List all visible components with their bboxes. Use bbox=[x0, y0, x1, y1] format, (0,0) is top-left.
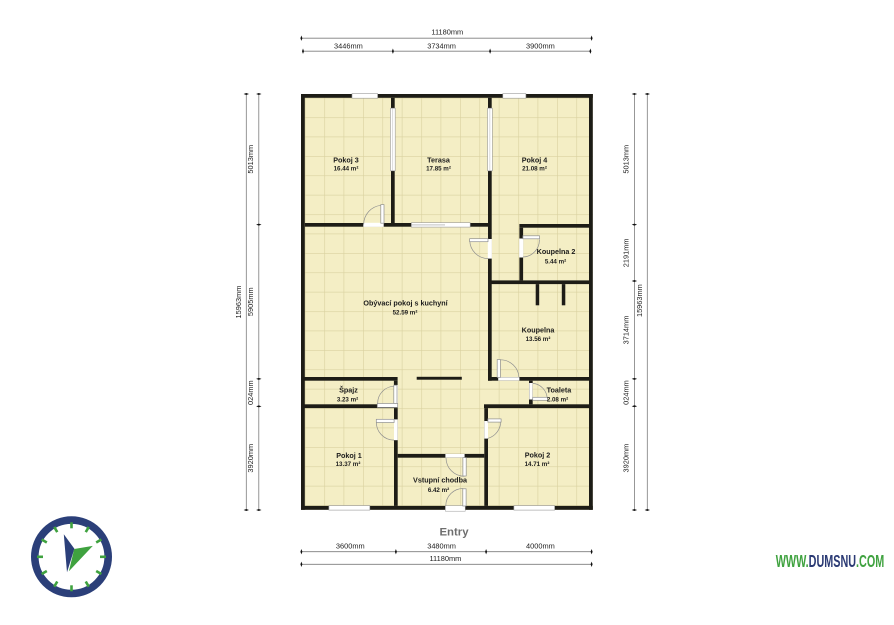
svg-text:2191mm: 2191mm bbox=[622, 238, 631, 267]
svg-text:17.85 m²: 17.85 m² bbox=[426, 165, 451, 172]
svg-text:5905mm: 5905mm bbox=[246, 287, 255, 316]
svg-text:3920mm: 3920mm bbox=[246, 444, 255, 473]
svg-text:3.23 m²: 3.23 m² bbox=[337, 397, 358, 404]
svg-text:Toaleta: Toaleta bbox=[547, 385, 573, 394]
svg-text:5.44 m²: 5.44 m² bbox=[545, 258, 566, 265]
svg-text:52.59 m²: 52.59 m² bbox=[393, 309, 418, 316]
svg-text:11180mm: 11180mm bbox=[431, 28, 463, 37]
svg-text:21.08 m²: 21.08 m² bbox=[522, 165, 547, 172]
svg-text:3600mm: 3600mm bbox=[336, 541, 365, 550]
svg-text:Pokoj 1: Pokoj 1 bbox=[336, 451, 362, 460]
svg-text:6.42 m²: 6.42 m² bbox=[428, 487, 449, 494]
svg-text:Koupelna: Koupelna bbox=[522, 325, 556, 334]
svg-text:15963mm: 15963mm bbox=[635, 284, 644, 317]
svg-text:3900mm: 3900mm bbox=[526, 41, 555, 50]
svg-text:3734mm: 3734mm bbox=[427, 41, 456, 50]
svg-text:5013mm: 5013mm bbox=[246, 145, 255, 174]
svg-text:3920mm: 3920mm bbox=[622, 444, 631, 473]
svg-text:13.56 m²: 13.56 m² bbox=[526, 336, 551, 343]
svg-text:3714mm: 3714mm bbox=[622, 316, 631, 345]
svg-text:WWW.DUMSNU.COM: WWW.DUMSNU.COM bbox=[776, 552, 884, 571]
svg-text:3480mm: 3480mm bbox=[427, 541, 456, 550]
svg-text:024mm: 024mm bbox=[622, 380, 631, 405]
svg-text:Pokoj 4: Pokoj 4 bbox=[522, 155, 548, 164]
svg-text:14.71 m²: 14.71 m² bbox=[525, 461, 550, 468]
svg-text:13.37 m²: 13.37 m² bbox=[336, 461, 361, 468]
svg-text:2.08 m²: 2.08 m² bbox=[547, 396, 568, 403]
svg-text:4000mm: 4000mm bbox=[526, 541, 555, 550]
svg-text:Pokoj 3: Pokoj 3 bbox=[333, 155, 359, 164]
svg-text:15963mm: 15963mm bbox=[234, 286, 243, 319]
svg-text:024mm: 024mm bbox=[246, 380, 255, 405]
svg-text:5013mm: 5013mm bbox=[622, 145, 631, 174]
svg-text:3446mm: 3446mm bbox=[334, 41, 363, 50]
svg-text:Pokoj 2: Pokoj 2 bbox=[525, 451, 551, 460]
svg-text:Terasa: Terasa bbox=[427, 155, 451, 164]
svg-text:Entry: Entry bbox=[439, 527, 469, 539]
svg-text:Vstupní chodba: Vstupní chodba bbox=[413, 476, 468, 485]
svg-text:11180mm: 11180mm bbox=[430, 554, 462, 563]
svg-text:Obývací pokoj s kuchyní: Obývací pokoj s kuchyní bbox=[363, 299, 448, 308]
svg-text:Koupelna 2: Koupelna 2 bbox=[537, 247, 576, 256]
svg-text:16.44 m²: 16.44 m² bbox=[334, 165, 359, 172]
svg-text:Špajz: Špajz bbox=[339, 385, 358, 394]
